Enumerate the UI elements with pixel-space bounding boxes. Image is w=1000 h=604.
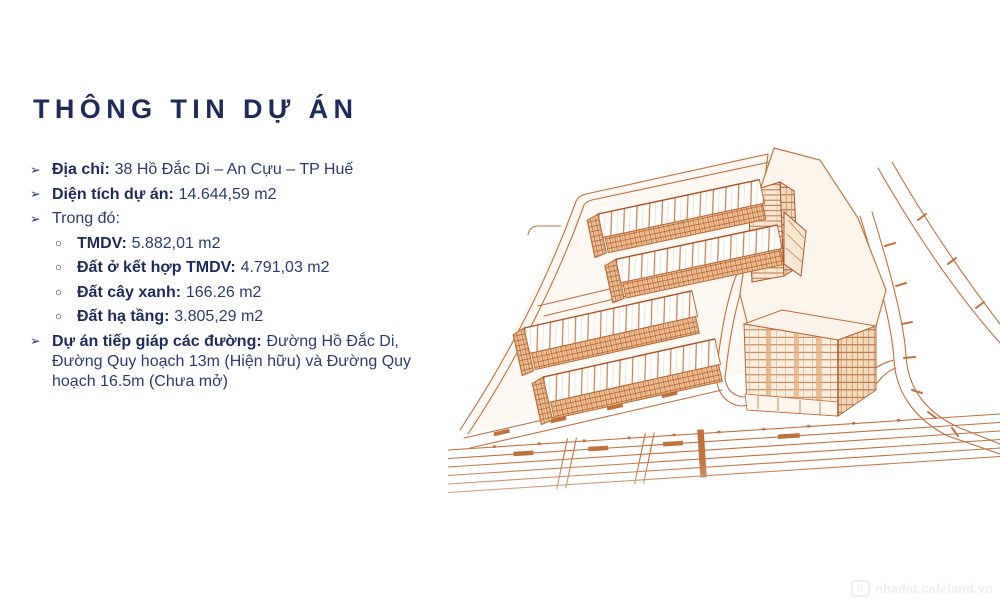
item-label: Đất cây xanh:: [77, 284, 181, 301]
arrow-bullet-icon: ➢: [30, 332, 52, 350]
list-item-area: ➢ Diện tích dự án:14.644,59 m2: [30, 185, 438, 205]
list-item-including: ➢ Trong đó:: [30, 209, 438, 229]
list-item-infra-land: ○ Đất hạ tầng:3.805,29 m2: [55, 307, 438, 327]
item-value: 14.644,59 m2: [179, 186, 277, 203]
site-plan-illustration: [448, 128, 1000, 568]
watermark: nhadat.cafeland.vn: [851, 580, 993, 597]
camera-icon: [851, 580, 870, 597]
page-title: THÔNG TIN DỰ ÁN: [33, 94, 358, 125]
item-value: Trong đó:: [52, 210, 120, 227]
project-info-list: ➢ Địa chỉ:38 Hồ Đắc Di – An Cựu – TP Huế…: [30, 160, 438, 396]
item-value: 38 Hồ Đắc Di – An Cựu – TP Huế: [115, 161, 354, 178]
site-plan-figure: [448, 128, 1000, 568]
list-item-mixed-land: ○ Đất ở kết hợp TMDV:4.791,03 m2: [55, 258, 438, 278]
item-value: 4.791,03 m2: [241, 259, 330, 276]
item-value: 5.882,01 m2: [132, 235, 221, 252]
item-label: TMDV:: [77, 235, 127, 252]
list-item-address: ➢ Địa chỉ:38 Hồ Đắc Di – An Cựu – TP Huế: [30, 160, 438, 180]
list-item-green-land: ○ Đất cây xanh:166.26 m2: [55, 283, 438, 303]
circle-bullet-icon: ○: [55, 307, 77, 324]
circle-bullet-icon: ○: [55, 283, 77, 300]
watermark-text: nhadat.cafeland.vn: [875, 582, 993, 596]
item-label: Đất hạ tầng:: [77, 308, 169, 325]
arrow-bullet-icon: ➢: [30, 160, 52, 178]
list-item-tmdv: ○ TMDV:5.882,01 m2: [55, 234, 438, 254]
item-label: Đất ở kết hợp TMDV:: [77, 259, 236, 276]
item-label: Dự án tiếp giáp các đường:: [52, 333, 262, 350]
item-label: Diện tích dự án:: [52, 186, 174, 203]
circle-bullet-icon: ○: [55, 234, 77, 251]
list-item-adjacent-roads: ➢ Dự án tiếp giáp các đường:Đường Hồ Đắc…: [30, 332, 438, 392]
circle-bullet-icon: ○: [55, 258, 77, 275]
arrow-bullet-icon: ➢: [30, 185, 52, 203]
item-value: 3.805,29 m2: [174, 308, 263, 325]
item-label: Địa chỉ:: [52, 161, 110, 178]
item-value: 166.26 m2: [186, 284, 262, 301]
arrow-bullet-icon: ➢: [30, 209, 52, 227]
project-info-slide: THÔNG TIN DỰ ÁN ➢ Địa chỉ:38 Hồ Đắc Di –…: [0, 0, 1000, 604]
